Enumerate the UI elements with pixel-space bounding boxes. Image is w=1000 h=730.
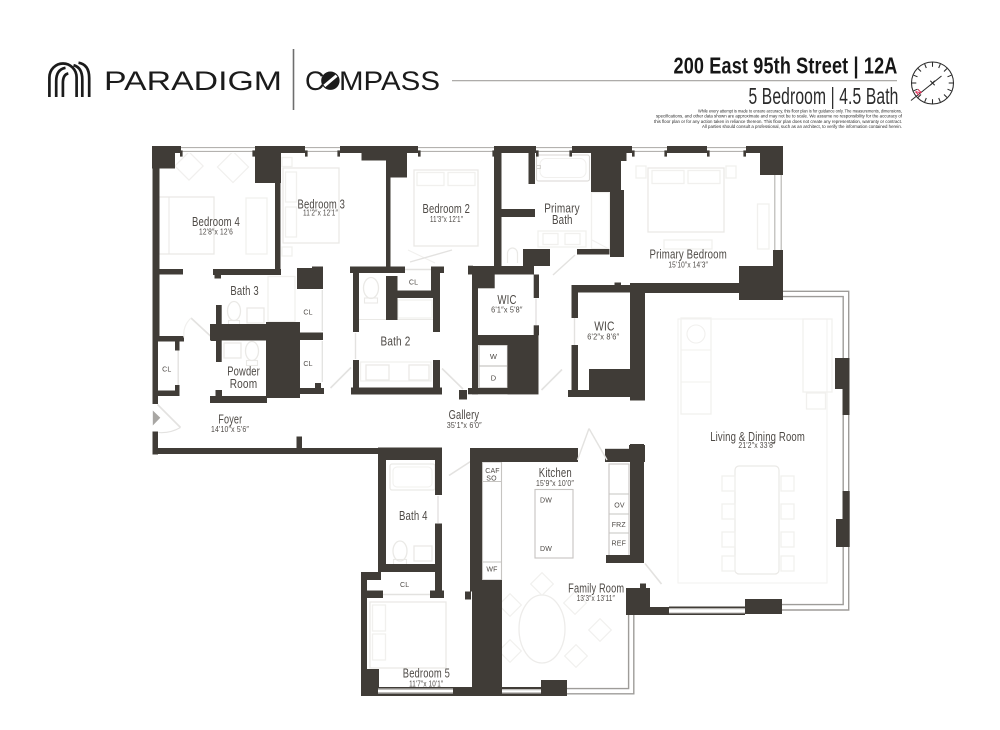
svg-text:Bedroom 5: Bedroom 5: [403, 667, 450, 681]
svg-text:21'2″x 33'8″: 21'2″x 33'8″: [738, 441, 775, 450]
svg-text:5 Bedroom | 4.5 Bath: 5 Bedroom | 4.5 Bath: [749, 83, 899, 109]
svg-text:REF: REF: [611, 541, 626, 548]
svg-text:DW: DW: [540, 498, 552, 505]
svg-text:Primary Bedroom: Primary Bedroom: [650, 247, 727, 261]
svg-text:200 East 95th Street | 12A: 200 East 95th Street | 12A: [674, 53, 898, 79]
svg-text:MPASS: MPASS: [339, 66, 440, 96]
svg-text:Gallery: Gallery: [449, 408, 480, 422]
svg-text:11'7″x 10'1″: 11'7″x 10'1″: [409, 680, 443, 689]
svg-text:CL: CL: [303, 310, 312, 317]
svg-text:D: D: [491, 374, 497, 383]
svg-text:W: W: [490, 352, 498, 361]
svg-text:FRZ: FRZ: [612, 522, 627, 529]
svg-text:Bath 3: Bath 3: [230, 284, 258, 298]
svg-text:SO: SO: [486, 476, 497, 483]
svg-text:14'10″x 5'6″: 14'10″x 5'6″: [211, 425, 249, 434]
svg-text:Bedroom 2: Bedroom 2: [423, 202, 471, 216]
svg-text:6'2″x 8'6″: 6'2″x 8'6″: [587, 332, 619, 341]
svg-text:N: N: [913, 87, 923, 97]
svg-text:CL: CL: [303, 361, 312, 368]
svg-text:Bath 2: Bath 2: [381, 335, 411, 349]
svg-text:DW: DW: [540, 546, 552, 553]
svg-text:15'9″x 10'0″: 15'9″x 10'0″: [536, 479, 574, 488]
svg-text:15'10″x 14'3″: 15'10″x 14'3″: [668, 261, 708, 270]
svg-text:35'1″x 6'0″: 35'1″x 6'0″: [447, 421, 482, 430]
svg-text:OV: OV: [614, 503, 625, 510]
svg-text:All parties should consult a p: All parties should consult a professiona…: [702, 124, 902, 129]
svg-text:11'3″x 12'1″: 11'3″x 12'1″: [430, 215, 463, 224]
svg-text:Bath: Bath: [552, 213, 573, 227]
svg-text:Bath 4: Bath 4: [399, 509, 428, 523]
svg-text:13'3″x 13'11″: 13'3″x 13'11″: [577, 594, 615, 603]
svg-text:CL: CL: [162, 366, 171, 373]
svg-text:Kitchen: Kitchen: [539, 466, 572, 480]
svg-text:CL: CL: [409, 280, 418, 287]
svg-text:CL: CL: [400, 582, 409, 589]
svg-text:CAF: CAF: [485, 468, 500, 475]
svg-text:11'2″x 12'1″: 11'2″x 12'1″: [303, 209, 338, 218]
svg-text:PARADIGM: PARADIGM: [104, 66, 282, 96]
svg-text:6'1″x 5'8″: 6'1″x 5'8″: [491, 306, 523, 315]
svg-text:12'8″x 12'6: 12'8″x 12'6: [199, 228, 233, 237]
svg-text:Room: Room: [230, 377, 258, 391]
svg-text:WF: WF: [486, 566, 497, 573]
